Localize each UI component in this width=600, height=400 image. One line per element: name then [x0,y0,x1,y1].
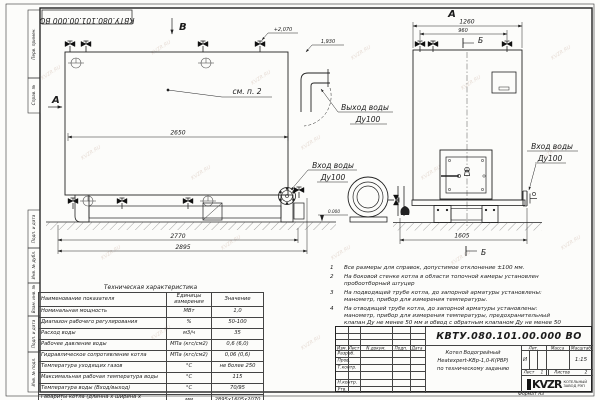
tech-cell: 35 [212,329,264,340]
valve-icon [81,41,91,52]
frame-label: Инв. № подл. [31,358,36,387]
tech-cell: °С [167,362,212,373]
level-zero: 0.000 [328,209,340,214]
tech-row: Температура уходящих газов°Сне более 250 [39,362,264,373]
note-item: 2 На боковой стенке котла в области топо… [330,274,570,289]
tech-cell: 70/95 [212,384,264,395]
tech-row: Рабочее давление водыМПа (кгс/см2)0,6 (6… [39,340,264,351]
drawing-labels: В А А Б Б +2,070 1,930 0.000 2650 2770 2… [51,9,573,257]
tech-cell: Максимальная рабочая температура воды [39,373,167,384]
tech-cell: Рабочее давление воды [39,340,167,351]
scale-header: Масштаб [571,345,591,350]
dim-2770: 2770 [170,233,185,240]
doc-description-line: по техническому заданию [437,366,509,374]
tech-row: Габариты котла (длинна х ширина х высота… [39,395,264,400]
title-block: КВТУ.080.101.00.000 ВО Изм. Лист N докум… [335,326,592,392]
position-mark-icon [198,58,214,68]
tech-cell: % [167,318,212,329]
tech-cell: 50-100 [212,318,264,329]
tech-cell: Диапазон рабочего регулирования [39,318,167,329]
rev-header-data: Дата [412,345,423,350]
inlet-front-label-dn: Ду100 [537,154,563,163]
doc-description-line: Heatexpert-КВр-1,0-К(РВР) [437,358,508,366]
doc-number: КВТУ.080.101.00.000 ВО [425,327,593,345]
row-label-tkontr: Т.контр. [338,365,357,370]
scale-value: 1:15 [575,357,587,363]
corner-stamp: КВТУ.080.101.00.000 ВО [39,16,134,25]
rev-header-podp: Подп. [395,345,408,350]
note-number: 3 [330,290,344,305]
blower [348,177,388,222]
sheet-label: Лист [524,370,535,375]
boiler-side-view [46,18,393,254]
outlet-label: Выход воды [341,103,389,112]
frame-label: Инв. № дубл. [31,251,36,280]
manufacturer-logo: KVZR КОТЕЛЬНЫЙ ЗАВОД РЭП [521,375,593,393]
section-b-letter: В [179,22,187,33]
dim-2650: 2650 [170,130,185,137]
note-number: 2 [330,274,344,289]
tech-row: Гидравлическое сопротивление котлаМПа (к… [39,351,264,362]
drain-valve-icon [183,198,193,209]
sheets-value: 2 [585,370,588,375]
tech-cell: Температура уходящих газов [39,362,167,373]
tech-characteristics: Техническая характеристика Наименование … [38,284,263,400]
tech-cell: м3/ч [167,329,212,340]
tech-row: Максимальная рабочая температура воды°С1… [39,373,264,384]
sheet-value: 1 [541,370,544,375]
tech-cell: Температура воды (Вход/выход) [39,384,167,395]
tech-cell: мм [167,395,212,400]
format-label: Формат А3 [518,392,544,397]
tech-header: Единицы измерения [167,293,212,307]
inlet-side-label: Вход воды [312,161,354,170]
position-mark-icon [80,196,96,206]
sheets-label: Листов [554,370,570,375]
logo-subtitle-line2: ЗАВОД РЭП [563,384,584,388]
position-mark-icon [200,196,216,206]
tech-cell: МПа (кгс/см2) [167,340,212,351]
valve-icon [198,41,208,52]
note-text: Все размеры для справок, допустимое откл… [344,265,570,272]
drain-valve-icon [68,198,78,209]
frame-label: Подп. и дата [31,214,36,243]
view-a-letter: А [447,9,456,20]
tech-cell: Номинальная мощность [39,307,167,318]
drawing-sheet: KVZR.RU KVZR.RU KVZR.RU KVZR.RU KVZR.RU … [0,0,600,400]
position-mark-icon [68,58,84,68]
row-label-utv: Утв. [338,387,347,392]
valve-icon [65,41,75,52]
row-label-prov: Пров. [338,358,351,363]
logo-kvzr: KVZR [527,379,561,390]
note-text: На подводящей трубе котла, до запорной а… [344,290,570,305]
frame-label: Перв. примен. [31,28,36,59]
section-a-letter: А [51,95,60,106]
elevation-top: +2,070 [274,27,293,33]
tech-cell: МВт [167,307,212,318]
tech-cell: °С [167,373,212,384]
valve-icon [255,41,265,52]
note-item: 3 На подводящей трубе котла, до запорной… [330,290,570,305]
tech-cell: 1,0 [212,307,264,318]
tech-header: Значение [212,293,264,307]
elevation-pipe: 1,930 [321,39,335,45]
see-note-ref: см. п. 2 [233,87,262,96]
tech-table-title: Техническая характеристика [38,284,263,291]
note-number: 1 [330,265,344,272]
tech-cell: °С [167,384,212,395]
note-item: 1 Все размеры для справок, допустимое от… [330,265,570,272]
tech-row: Номинальная мощностьМВт1,0 [39,307,264,318]
row-label-nkontr: Н.контр. [338,380,358,385]
inlet-front-label: Вход воды [531,142,573,151]
rev-header-izm: Изм. [337,345,347,350]
doc-description: Котел Водогрейный Heatexpert-КВр-1,0-К(Р… [425,345,521,379]
tech-cell: Габариты котла (длинна х ширина х высота… [39,395,167,400]
tech-cell: Расход воды [39,329,167,340]
logo-subtitle: КОТЕЛЬНЫЙ ЗАВОД РЭП [563,380,587,389]
dim-1605: 1605 [454,233,469,240]
frame-label: Взам. инв. № [31,284,36,313]
boiler-front-view [388,22,578,256]
note-text: На боковой стенке котла в области топочн… [344,274,570,289]
outlet-label-dn: Ду100 [355,115,381,124]
rev-header-list: Лист [349,345,360,350]
drain-valve-icon [117,198,127,209]
rev-header-docum: N докум. [366,345,385,350]
frame-label: Подп. и дата [31,319,36,348]
mass-header: Масса [551,345,564,350]
frame-label: Справ. № [31,84,36,105]
dim-1260: 1260 [459,19,474,26]
tech-header: Наименование показателя [39,293,167,307]
tech-header-row: Наименование показателя Единицы измерени… [39,293,264,307]
lit-header: Лит. [529,345,539,350]
tech-cell: 0,6 (6,0) [212,340,264,351]
doc-description-line: Котел Водогрейный [446,350,501,358]
dim-960: 960 [458,28,468,34]
tech-cell: МПа (кгс/см2) [167,351,212,362]
section-b-top-letter: Б [478,36,483,45]
dim-2895: 2895 [175,244,190,251]
pipe-valve-icon [388,195,399,205]
row-label-razrab: Разраб. [338,351,355,356]
tech-row: Диапазон рабочего регулирования%50-100 [39,318,264,329]
tech-row: Расход водым3/ч35 [39,329,264,340]
tech-cell: Гидравлическое сопротивление котла [39,351,167,362]
tech-row: Температура воды (Вход/выход)°С70/95 [39,384,264,395]
lit-value: И [523,357,527,363]
tech-cell: не более 250 [212,362,264,373]
tech-cell: 0,06 (0,6) [212,351,264,362]
section-b-bottom-letter: Б [481,248,486,257]
tech-cell: 2895х1605х2070 [212,395,264,400]
inlet-side-label-dn: Ду100 [320,173,346,182]
tech-cell: 115 [212,373,264,384]
